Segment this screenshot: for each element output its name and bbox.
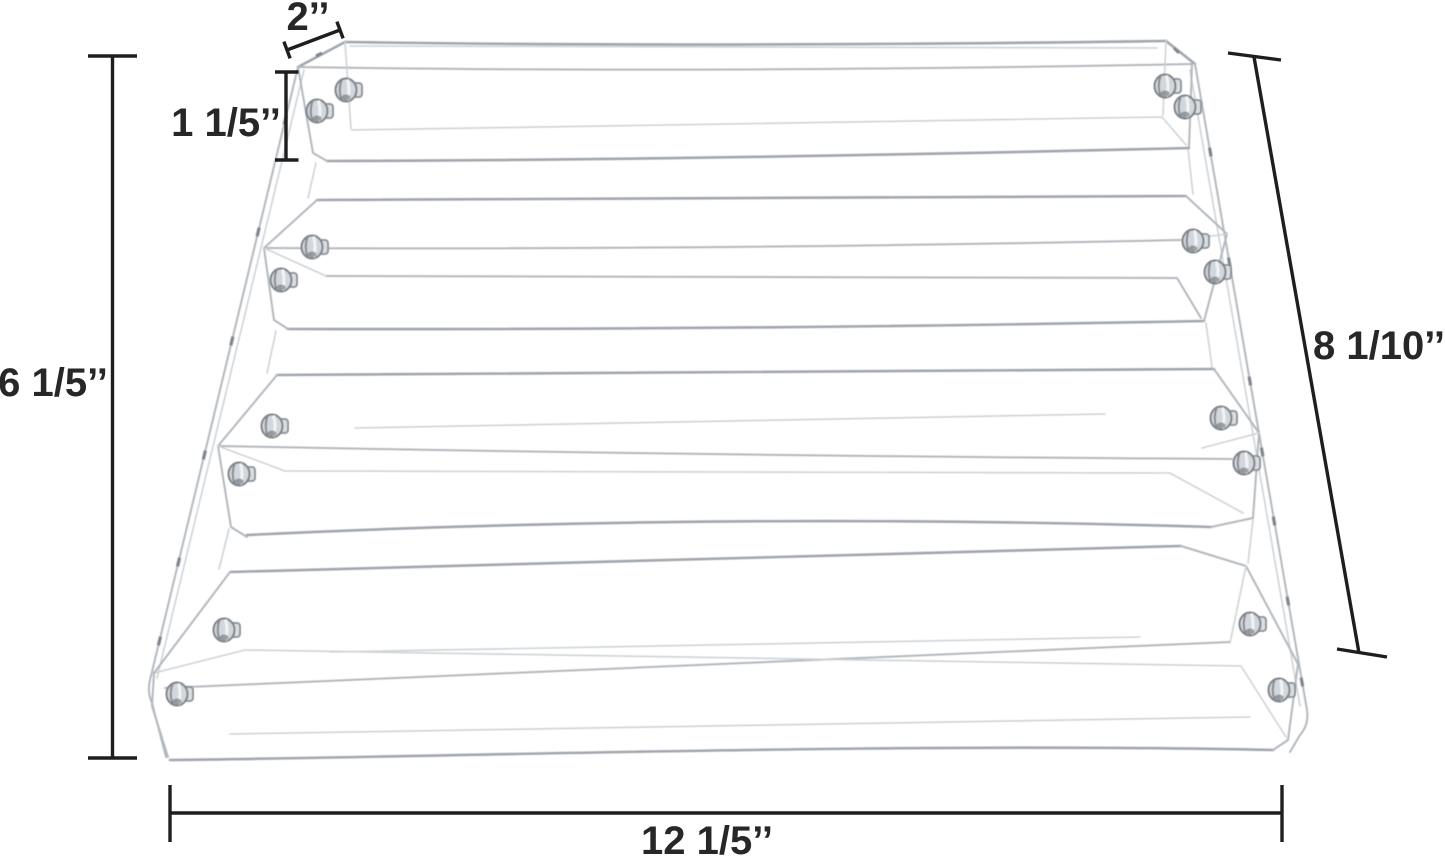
- svg-text:6 1/5’’: 6 1/5’’: [0, 361, 108, 405]
- svg-text:8 1/10’’: 8 1/10’’: [1313, 324, 1445, 368]
- svg-text:2’’: 2’’: [287, 0, 330, 39]
- svg-text:12 1/5’’: 12 1/5’’: [641, 819, 773, 860]
- svg-text:1 1/5’’: 1 1/5’’: [171, 101, 281, 145]
